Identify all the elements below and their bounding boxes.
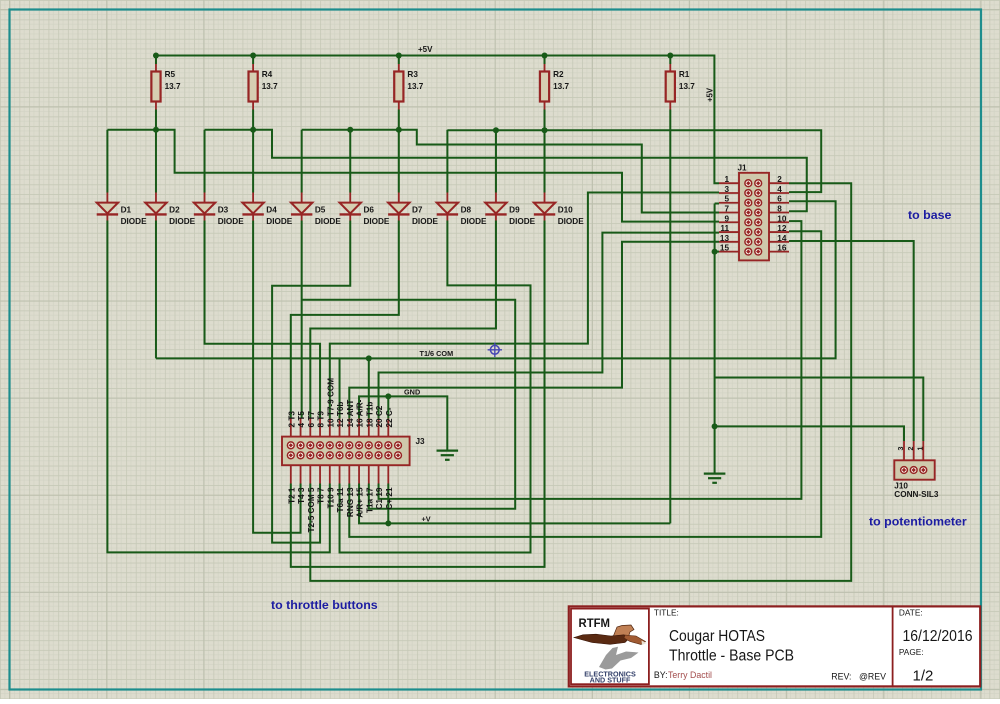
- svg-text:22 C-: 22 C-: [385, 407, 394, 427]
- svg-text:13: 13: [720, 234, 730, 243]
- svg-text:T1/6 COM: T1/6 COM: [420, 349, 454, 358]
- svg-text:DIODE: DIODE: [169, 217, 195, 226]
- svg-text:DIODE: DIODE: [218, 217, 244, 226]
- svg-text:C+ 21: C+ 21: [385, 487, 394, 510]
- svg-text:1/2: 1/2: [913, 668, 934, 685]
- svg-text:D1: D1: [121, 205, 132, 214]
- svg-text:T6a 11: T6a 11: [336, 487, 345, 512]
- svg-text:3: 3: [898, 447, 905, 451]
- svg-text:D7: D7: [412, 205, 423, 214]
- svg-text:12 T6b: 12 T6b: [336, 402, 345, 428]
- svg-text:to throttle buttons: to throttle buttons: [271, 598, 378, 612]
- svg-text:6 T7: 6 T7: [307, 411, 316, 428]
- svg-text:D8: D8: [461, 205, 472, 214]
- svg-text:R1: R1: [679, 70, 690, 79]
- svg-text:J3: J3: [416, 437, 426, 446]
- svg-text:D5: D5: [315, 205, 326, 214]
- svg-text:AND STUFF: AND STUFF: [590, 676, 631, 685]
- svg-text:11: 11: [720, 224, 729, 233]
- svg-text:1: 1: [918, 447, 925, 451]
- svg-text:14 ANT: 14 ANT: [346, 400, 355, 428]
- svg-text:8 T9: 8 T9: [317, 411, 326, 428]
- svg-text:2: 2: [777, 175, 782, 184]
- svg-text:CONN-SIL3: CONN-SIL3: [894, 490, 939, 499]
- svg-text:3: 3: [724, 185, 729, 194]
- svg-text:J1: J1: [738, 164, 748, 173]
- svg-text:D9: D9: [509, 205, 520, 214]
- svg-text:T8 7: T8 7: [317, 487, 326, 504]
- svg-text:+5V: +5V: [706, 87, 715, 102]
- svg-text:13.7: 13.7: [165, 82, 181, 91]
- svg-text:C1 19: C1 19: [375, 487, 384, 509]
- svg-text:16: 16: [777, 244, 787, 253]
- svg-text:+V: +V: [422, 514, 431, 523]
- svg-text:@REV: @REV: [859, 671, 886, 681]
- svg-text:Throttle - Base PCB: Throttle - Base PCB: [669, 648, 794, 665]
- svg-text:16 A/R-: 16 A/R-: [356, 399, 365, 427]
- svg-text:D6: D6: [363, 205, 374, 214]
- svg-text:7: 7: [724, 205, 729, 214]
- svg-text:D4: D4: [266, 205, 277, 214]
- svg-text:DATE:: DATE:: [899, 608, 923, 618]
- svg-text:Terry Dactil: Terry Dactil: [668, 670, 712, 680]
- svg-text:PAGE:: PAGE:: [899, 647, 924, 657]
- svg-text:T2-5 COM 5: T2-5 COM 5: [307, 487, 316, 532]
- svg-text:2: 2: [908, 447, 915, 451]
- svg-text:T2 1: T2 1: [287, 487, 296, 504]
- svg-text:DIODE: DIODE: [266, 217, 292, 226]
- svg-text:5: 5: [724, 195, 729, 204]
- svg-text:10: 10: [777, 214, 787, 223]
- svg-text:DIODE: DIODE: [315, 217, 341, 226]
- svg-text:T1a 17: T1a 17: [365, 487, 374, 513]
- svg-text:1: 1: [724, 175, 729, 184]
- svg-text:DIODE: DIODE: [363, 217, 389, 226]
- svg-text:Cougar HOTAS: Cougar HOTAS: [669, 628, 765, 645]
- svg-text:14: 14: [777, 234, 787, 243]
- svg-text:BY:: BY:: [654, 670, 668, 680]
- svg-text:15: 15: [720, 244, 730, 253]
- svg-text:DIODE: DIODE: [412, 217, 438, 226]
- svg-text:D10: D10: [558, 205, 573, 214]
- svg-text:R3: R3: [407, 70, 418, 79]
- svg-text:4 T5: 4 T5: [297, 411, 306, 428]
- svg-text:D2: D2: [169, 205, 180, 214]
- svg-text:TITLE:: TITLE:: [654, 608, 679, 618]
- svg-text:T4 3: T4 3: [297, 487, 306, 504]
- svg-text:12: 12: [777, 224, 787, 233]
- svg-text:R4: R4: [262, 70, 273, 79]
- svg-text:+5V: +5V: [418, 45, 433, 54]
- svg-text:GND: GND: [404, 387, 420, 396]
- svg-text:A/R+ 15: A/R+ 15: [356, 487, 365, 518]
- svg-text:RTFM: RTFM: [579, 616, 611, 630]
- svg-text:DIODE: DIODE: [509, 217, 535, 226]
- svg-text:DIODE: DIODE: [461, 217, 487, 226]
- svg-text:DIODE: DIODE: [558, 217, 584, 226]
- svg-text:4: 4: [777, 185, 782, 194]
- svg-text:2 T3: 2 T3: [287, 411, 296, 428]
- svg-text:13.7: 13.7: [262, 82, 278, 91]
- svg-text:10 T7-9 COM: 10 T7-9 COM: [326, 378, 335, 428]
- svg-text:T10 9: T10 9: [326, 487, 335, 508]
- svg-text:20 C2: 20 C2: [375, 405, 384, 427]
- svg-text:R5: R5: [165, 70, 176, 79]
- svg-text:R2: R2: [553, 70, 564, 79]
- svg-text:RNG 13: RNG 13: [346, 487, 355, 517]
- svg-text:6: 6: [777, 195, 782, 204]
- svg-text:to base: to base: [908, 208, 951, 222]
- svg-text:to potentiometer: to potentiometer: [869, 515, 967, 529]
- svg-text:18 T1b: 18 T1b: [365, 402, 374, 428]
- svg-text:D3: D3: [218, 205, 229, 214]
- svg-text:8: 8: [777, 205, 782, 214]
- svg-text:REV:: REV:: [831, 671, 851, 681]
- svg-text:13.7: 13.7: [679, 82, 695, 91]
- svg-text:16/12/2016: 16/12/2016: [903, 628, 973, 645]
- svg-text:DIODE: DIODE: [121, 217, 147, 226]
- svg-text:9: 9: [724, 214, 729, 223]
- svg-text:13.7: 13.7: [553, 82, 569, 91]
- svg-text:13.7: 13.7: [407, 82, 423, 91]
